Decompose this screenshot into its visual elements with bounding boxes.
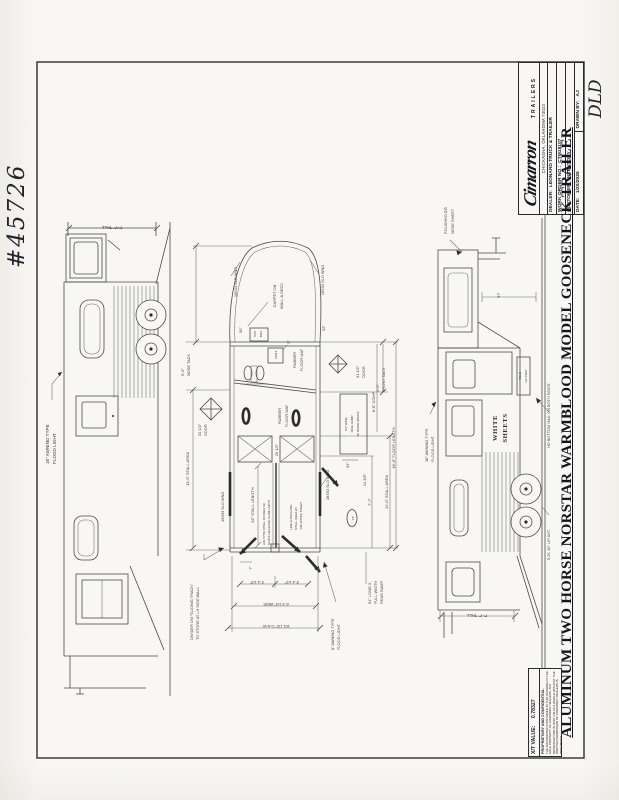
- right-view-wheels: [511, 474, 541, 537]
- stall-length-dim: 82" STALL LENGTH: [250, 487, 255, 522]
- brand-logo: Cimarron TRAILERS: [519, 63, 540, 214]
- stall-width-dim-2: 3'-4 1/2": [284, 580, 299, 585]
- nose-window-label-right: 19X34 SLD WND: [320, 265, 325, 295]
- date-row: DATE: 1/20/2026 DRAWN BY: AJ: [575, 63, 583, 214]
- drawing-title-text: ALUMINUM TWO HORSE NORSTAR WARMBLOOD MOD…: [559, 127, 576, 738]
- dim-14-38: 14 3/8": [362, 473, 367, 486]
- drawn-by-label: DRAWN BY:: [576, 101, 581, 129]
- carpet-note-2: WALL & DECK: [279, 283, 284, 309]
- left-flood-label-2: FLOOD LIGHT: [52, 433, 57, 464]
- footer-block: X/T VALUE: 0.78327 PROPRIETARY AND CONFI…: [528, 668, 562, 757]
- proprietary-body: THE INFORMATION CONTAINED IN THIS DRAWIN…: [546, 671, 564, 754]
- dim-7-7: 7'-7": [367, 498, 372, 506]
- front-tack-dim-1: 4'-0": [375, 384, 380, 392]
- date-cell: DATE: 1/20/2026: [575, 171, 583, 212]
- bubble-74: 74": [351, 516, 355, 521]
- right-flood-label-2: FLOOD LIGHT: [430, 435, 435, 462]
- right-side-door: 31 1/2" DOOR: [329, 355, 366, 378]
- rubber-mat-stall-1: RUBBER: [277, 408, 282, 424]
- overall-wide-dim: 6'-9 1/4" WIDE: [263, 602, 289, 607]
- drawing-title: ALUMINUM TWO HORSE NORSTAR WARMBLOOD MOD…: [550, 215, 584, 650]
- dim-5: 5": [286, 340, 291, 344]
- hat-box-label-1: HAT: [253, 331, 257, 337]
- nose-window-dim-left: 50": [238, 327, 243, 333]
- left-view-wheels: [136, 300, 166, 364]
- stall-area-dim-right: 14'-0" STALL AREA: [384, 475, 389, 509]
- floor-plan-view: 19X34 SLD WND 19X34 SLD WND 50" 52" CARP…: [180, 241, 399, 650]
- xt-value-row: X/T VALUE: 0.78327: [529, 669, 540, 756]
- nose-window-dim-right: 52": [321, 325, 326, 331]
- left-door-word: DOOR: [203, 424, 208, 436]
- right-elevation-view: POLISHED S/S NOSE SHEET 57" FOLD UP STEP…: [424, 207, 551, 696]
- rear-ramp-note-1: 54" LONG X: [367, 582, 372, 604]
- sheet-frame: [37, 62, 584, 758]
- brand-subname: TRAILERS: [531, 77, 537, 118]
- side-ramp-note-2: SIDE RAMP: [350, 415, 354, 432]
- dim-57: 57": [496, 292, 501, 298]
- stall-area-dim-left: 13'-0" STALL AREA: [185, 452, 190, 486]
- divider-note-1: AIR TYPE STALL DIVIDER W/: [262, 503, 266, 545]
- dealer-value: LEONARD TRUCK & TRAILER: [548, 117, 556, 187]
- drawn-by-cell: DRAWN BY: AJ: [575, 63, 583, 132]
- brand-address: CHICKASHA, OKLAHOMA 73023: [540, 63, 548, 214]
- drawn-by-value: AJ: [576, 90, 581, 96]
- right-tall-dim: 7'-7" TALL: [466, 613, 487, 618]
- nose-sheet-label-2: NOSE SHEET: [450, 208, 455, 234]
- divider-track-note-1: DIVIDER ON "SLIDING TRACK": [189, 583, 194, 640]
- stall-window-label-left: 19X53 SLD WND: [220, 492, 225, 522]
- nose-tack-dim-2: NOSE TACK: [186, 353, 191, 376]
- manger-boxes: 25 1/2": [238, 436, 314, 462]
- dim-7: 7": [248, 566, 253, 570]
- proprietary-note: PROPRIETARY AND CONFIDENTIAL THE INFORMA…: [540, 669, 564, 756]
- rubber-mat-front-2: FLOOR MAT: [299, 348, 304, 371]
- xt-value: 0.78327: [531, 699, 537, 718]
- rubber-mat-stall-2: FLOOR MAT: [284, 404, 289, 427]
- left-tall-dim: 7'-7" TALL: [101, 225, 122, 230]
- date-label: DATE:: [576, 197, 581, 212]
- nose-tack-dim-1: 5'-0": [180, 368, 185, 376]
- right-door-dim: 31 1/2": [355, 365, 360, 378]
- nose-sheet-label-1: POLISHED S/S: [443, 207, 448, 234]
- white-sheets-label-1: WHITE: [492, 415, 499, 441]
- front-tack-dim-2: FRONT TACK: [381, 367, 386, 392]
- brand-name: Cimarron: [520, 138, 540, 208]
- oaw-dim: 101 1/2" O.A.W.: [262, 624, 290, 629]
- vent-box-label: VENT: [274, 351, 278, 359]
- rubber-mat-front-1: RUBBER: [292, 352, 297, 368]
- fold-up-step-label-1: FOLD: [518, 371, 522, 380]
- left-flood-label-1: 16" AWNING TYPE: [45, 424, 50, 464]
- hat-box-label-2: BOX: [259, 331, 263, 338]
- side-ramp-dim-54: 54": [345, 462, 350, 468]
- insulate-note-3: .032 WHITE SHEET: [299, 502, 303, 530]
- right-door-word: DOOR: [361, 366, 366, 378]
- side-ramp-note-1: 54" WIDE: [344, 417, 348, 430]
- dealer-label: DEALER:: [548, 190, 556, 212]
- white-sheets-label-2: SHEETS: [502, 413, 509, 442]
- manger-dim: 25 1/2": [274, 443, 279, 456]
- rear-flood-label-2: FLOOD LIGHT: [336, 623, 341, 650]
- divider-track-note-2: TO STORE AT LH SIDE WALL: [195, 586, 200, 640]
- stall-width-dim-1: 3'-4 1/2": [249, 580, 264, 585]
- xt-label: X/T VALUE:: [531, 726, 537, 754]
- insulate-note-1: LINE & INSULATE: [289, 504, 293, 530]
- right-flood-label-1: 16" AWNING TYPE: [424, 428, 429, 462]
- divider-note-2: QUICK RELEASE SLAM LATCH: [267, 500, 271, 545]
- date-value: 1/20/2026: [576, 171, 581, 193]
- insulate-note-2: STALL AREA W/: [294, 507, 298, 530]
- side-ramp-note-3: W/ DOOR ABOVE: [356, 411, 360, 436]
- comp-dim: 6'-8" COMP: [371, 391, 376, 412]
- rear-ramp-note-3: REAR RAMP: [379, 580, 384, 604]
- left-elevation-view: 7'-7" TALL: [45, 222, 170, 696]
- carpet-note-1: CARPET ON: [272, 285, 277, 308]
- handwritten-reference-number: #45726: [4, 68, 36, 268]
- rear-flood-label-1: 8" AWNING TYPE: [330, 618, 335, 650]
- left-side-door: 31 1/2" DOOR: [197, 398, 222, 436]
- fold-up-step-label-2: UP STEP: [524, 369, 528, 382]
- scanned-blueprint-page: 7'-7" TALL: [0, 0, 619, 800]
- left-door-dim: 31 1/2": [197, 423, 202, 436]
- rear-ramp-note-2: FULL WIDTH: [373, 581, 378, 604]
- handwritten-initials: DLD: [586, 52, 616, 118]
- floor-length-dim: 16'-0" FLOOR LENGTH: [391, 427, 396, 468]
- dealer-row: DEALER: LEONARD TRUCK & TRAILER: [548, 63, 557, 214]
